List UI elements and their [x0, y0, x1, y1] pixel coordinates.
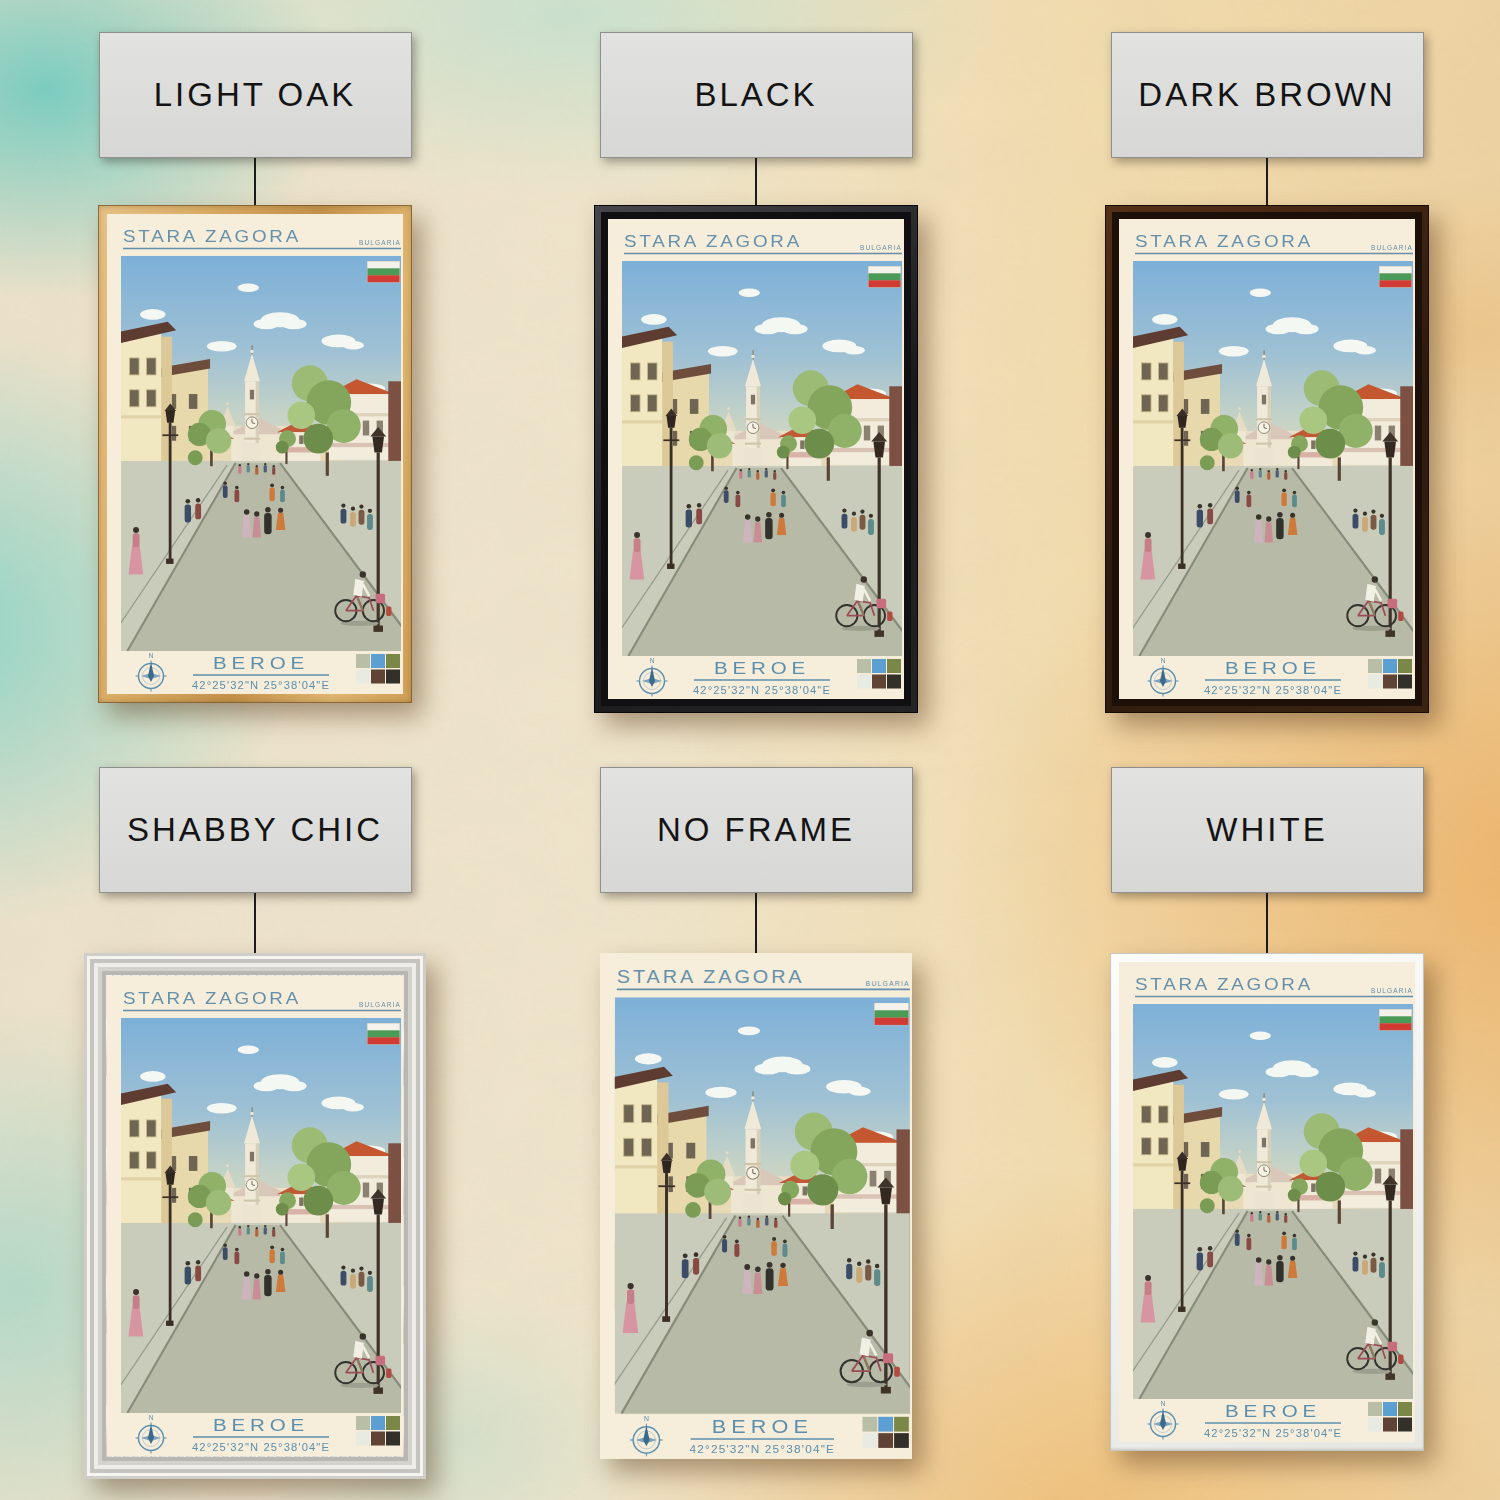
framed-poster-white: STARA ZAGORA BULGARIA	[1110, 953, 1424, 1451]
hanging-line	[755, 893, 757, 953]
svg-text:N: N	[1161, 1400, 1166, 1407]
hanging-line	[1266, 893, 1268, 953]
artwork-scene	[1119, 261, 1415, 656]
country-label: BULGARIA	[860, 244, 902, 251]
bulgaria-flag	[367, 261, 400, 283]
svg-text:N: N	[650, 657, 655, 664]
option-label: SHABBY CHIC	[99, 767, 412, 893]
team-name: BEROE	[1225, 659, 1321, 678]
frame-option-no-frame: NO FRAME STARA ZAGORA BULGARIA	[586, 735, 926, 1459]
coordinates-text: 42°25'32"N 25°38'04"E	[1204, 1428, 1342, 1439]
team-name: BEROE	[714, 659, 810, 678]
bulgaria-flag	[868, 266, 901, 288]
coordinates-text: 42°25'32"N 25°38'04"E	[693, 685, 831, 696]
bulgaria-flag	[367, 1023, 400, 1045]
team-name: BEROE	[213, 1416, 309, 1435]
poster-title: STARA ZAGORA	[123, 227, 301, 246]
poster-paper: STARA ZAGORA BULGARIA	[1119, 962, 1415, 1442]
coordinates-text: 42°25'32"N 25°38'04"E	[690, 1443, 835, 1455]
svg-text:N: N	[1161, 657, 1166, 664]
hanging-line	[1266, 158, 1268, 205]
artwork-scene	[1119, 1004, 1415, 1399]
product-collage: LIGHT OAK STARA ZAGORA BULGARIA	[0, 0, 1500, 1500]
poster-paper: STARA ZAGORA BULGARIA	[1119, 219, 1415, 699]
poster-paper: STARA ZAGORA BULGARIA	[107, 214, 403, 694]
frame-option-dark-brown: DARK BROWN STARA ZAGORA BULGARIA	[1096, 0, 1438, 713]
unframed-poster: STARA ZAGORA BULGARIA	[600, 953, 912, 1459]
coordinates-text: 42°25'32"N 25°38'04"E	[192, 1442, 330, 1453]
option-label: DARK BROWN	[1111, 32, 1424, 158]
poster-paper: STARA ZAGORA BULGARIA	[608, 219, 904, 699]
hanging-line	[254, 893, 256, 953]
artwork-scene	[107, 1018, 403, 1413]
country-label: BULGARIA	[359, 239, 401, 246]
artwork-scene	[600, 997, 912, 1413]
frame-option-black: BLACK STARA ZAGORA BULGARIA	[586, 0, 926, 713]
poster-title: STARA ZAGORA	[624, 232, 802, 251]
frame-option-white: WHITE STARA ZAGORA BULGARIA	[1096, 735, 1438, 1451]
hanging-line	[254, 158, 256, 205]
frame-option-shabby-chic: SHABBY CHIC STARA ZAGORA BULGARIA	[88, 735, 422, 1479]
country-label: BULGARIA	[359, 1001, 401, 1008]
svg-text:N: N	[644, 1415, 649, 1422]
framed-poster-light-oak: STARA ZAGORA BULGARIA	[98, 205, 412, 703]
poster-paper: STARA ZAGORA BULGARIA	[107, 976, 403, 1456]
bulgaria-flag	[874, 1003, 909, 1026]
frame-option-light-oak: LIGHT OAK STARA ZAGORA BULGARIA	[88, 0, 422, 703]
country-label: BULGARIA	[866, 979, 910, 988]
bulgaria-flag	[1379, 266, 1412, 288]
framed-poster-dark-brown: STARA ZAGORA BULGARIA	[1105, 205, 1429, 713]
framed-poster-shabby-chic: STARA ZAGORA BULGARIA	[84, 953, 426, 1479]
poster-title: STARA ZAGORA	[1135, 232, 1313, 251]
coordinates-text: 42°25'32"N 25°38'04"E	[1204, 685, 1342, 696]
framed-poster-black: STARA ZAGORA BULGARIA	[594, 205, 918, 713]
option-label: LIGHT OAK	[99, 32, 412, 158]
country-label: BULGARIA	[1371, 987, 1413, 994]
option-label: BLACK	[600, 32, 913, 158]
hanging-line	[755, 158, 757, 205]
team-name: BEROE	[213, 654, 309, 673]
poster-title: STARA ZAGORA	[617, 967, 805, 987]
svg-text:N: N	[149, 652, 154, 659]
artwork-scene	[608, 261, 904, 656]
option-label: WHITE	[1111, 767, 1424, 893]
option-label: NO FRAME	[600, 767, 913, 893]
country-label: BULGARIA	[1371, 244, 1413, 251]
poster-paper: STARA ZAGORA BULGARIA	[600, 953, 912, 1459]
artwork-scene	[107, 256, 403, 651]
team-name: BEROE	[712, 1417, 813, 1437]
poster-title: STARA ZAGORA	[123, 989, 301, 1008]
bulgaria-flag	[1379, 1009, 1412, 1031]
svg-text:N: N	[149, 1414, 154, 1421]
poster-title: STARA ZAGORA	[1135, 975, 1313, 994]
coordinates-text: 42°25'32"N 25°38'04"E	[192, 680, 330, 691]
team-name: BEROE	[1225, 1402, 1321, 1421]
